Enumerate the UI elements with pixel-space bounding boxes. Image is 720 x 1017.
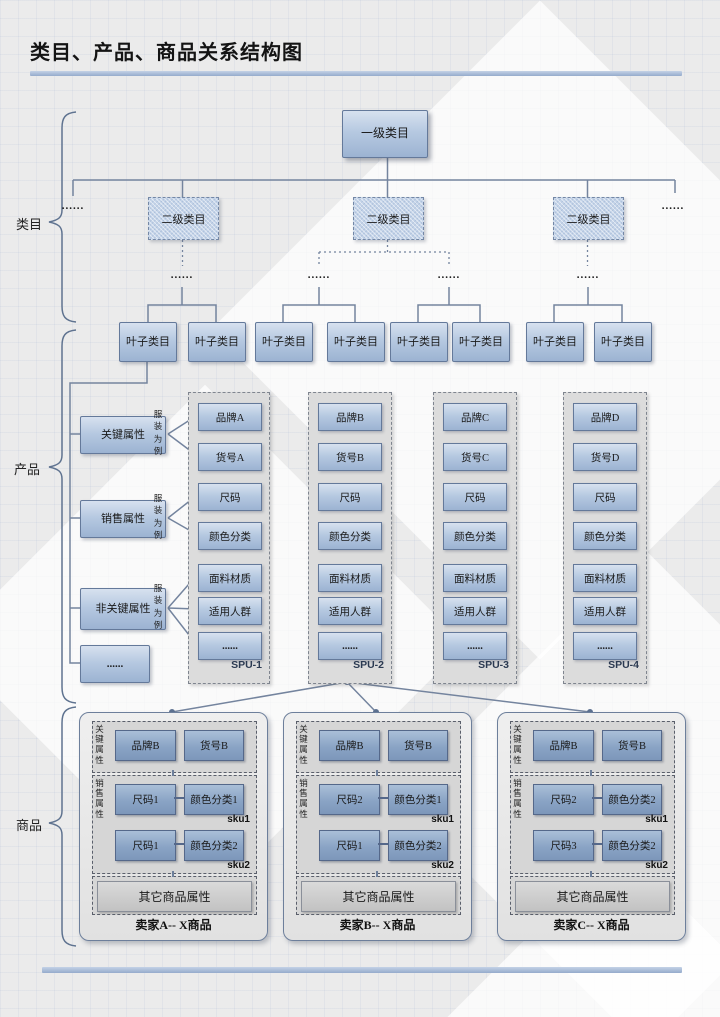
spu-attr-box: 品牌C xyxy=(443,403,507,431)
leaf-category-node: 叶子类目 xyxy=(452,322,510,362)
spu-attr-box: 颜色分类 xyxy=(443,522,507,550)
spu-attr-box: 货号C xyxy=(443,443,507,471)
size-box: 尺码2 xyxy=(533,784,594,815)
other-attr-section: 其它商品属性 xyxy=(296,876,461,915)
spu-attr-box: ...... xyxy=(198,632,262,660)
level2-category-node: 二级类目 xyxy=(148,197,219,240)
leaf-category-node: 叶子类目 xyxy=(188,322,246,362)
title-underline xyxy=(30,71,682,76)
other-attr-section: 其它商品属性 xyxy=(510,876,675,915)
sku-row-link xyxy=(174,797,184,799)
spu-attr-box: 尺码 xyxy=(318,483,382,511)
spu-label: SPU-1 xyxy=(231,659,262,671)
level2-category-node: 二级类目 xyxy=(553,197,624,240)
sales-attr-label: 销售属性 xyxy=(94,778,105,819)
root-category-node: 一级类目 xyxy=(342,110,428,158)
size-box: 尺码1 xyxy=(115,830,176,861)
spu-attr-box: 颜色分类 xyxy=(198,522,262,550)
color-box: 颜色分类2 xyxy=(602,784,662,815)
other-attr-box: 其它商品属性 xyxy=(97,881,252,912)
seller-card-c: 关键属性 品牌B 货号B 销售属性 尺码2 颜色分类2 sku1 尺码3 颜色分… xyxy=(497,712,686,941)
sales-attr-section: 销售属性 尺码1 颜色分类1 sku1 尺码1 颜色分类2 sku2 xyxy=(92,775,257,874)
branch-ellipsis: ...... xyxy=(293,269,345,281)
spu-attr-box: ...... xyxy=(573,632,637,660)
page-title: 类目、产品、商品关系结构图 xyxy=(30,36,303,65)
brand-box: 品牌B xyxy=(319,730,380,761)
seller-card-b: 关键属性 品牌B 货号B 销售属性 尺码2 颜色分类1 sku1 尺码1 颜色分… xyxy=(283,712,472,941)
spu-attr-box: 适用人群 xyxy=(443,597,507,625)
spu-column-3: 品牌C 货号C 尺码 颜色分类 面料材质 适用人群 ...... SPU-3 xyxy=(433,392,517,684)
section-connector xyxy=(172,871,174,877)
leaf-category-node: 叶子类目 xyxy=(526,322,584,362)
brace-label-goods: 商品 xyxy=(14,815,44,834)
other-attr-section: 其它商品属性 xyxy=(92,876,257,915)
spu-column-4: 品牌D 货号D 尺码 颜色分类 面料材质 适用人群 ...... SPU-4 xyxy=(563,392,647,684)
other-attr-box: 其它商品属性 xyxy=(301,881,456,912)
key-attr-label: 关键属性 xyxy=(298,724,309,765)
branch-ellipsis: ...... xyxy=(562,269,614,281)
leaf-category-node: 叶子类目 xyxy=(255,322,313,362)
spu-column-2: 品牌B 货号B 尺码 颜色分类 面料材质 适用人群 ...... SPU-2 xyxy=(308,392,392,684)
key-attr-section: 关键属性 品牌B 货号B xyxy=(92,721,257,773)
size-box: 尺码3 xyxy=(533,830,594,861)
spu-attr-box: 尺码 xyxy=(573,483,637,511)
ellipsis-left: ...... xyxy=(52,200,94,212)
color-box: 颜色分类2 xyxy=(602,830,662,861)
spu-attr-box: 货号A xyxy=(198,443,262,471)
spu-attr-box: 货号D xyxy=(573,443,637,471)
section-connector xyxy=(172,770,174,776)
item-no-box: 货号B xyxy=(602,730,662,761)
ellipsis-right: ...... xyxy=(652,200,694,212)
key-attr-label: 关键属性 xyxy=(512,724,523,765)
leaf-category-node: 叶子类目 xyxy=(119,322,177,362)
spu-attr-box: 适用人群 xyxy=(318,597,382,625)
key-attr-section: 关键属性 品牌B 货号B xyxy=(510,721,675,773)
color-box: 颜色分类1 xyxy=(184,784,244,815)
sku-row-link xyxy=(592,797,602,799)
sku-tag: sku1 xyxy=(431,814,454,825)
sku-row-link xyxy=(378,797,388,799)
leaf-category-node: 叶子类目 xyxy=(594,322,652,362)
other-attr-box: 其它商品属性 xyxy=(515,881,670,912)
leaf-category-node: 叶子类目 xyxy=(327,322,385,362)
spu-attr-box: 适用人群 xyxy=(198,597,262,625)
color-box: 颜色分类1 xyxy=(388,784,448,815)
seller-name: 卖家B-- X商品 xyxy=(284,916,471,933)
spu-label: SPU-2 xyxy=(353,659,384,671)
sales-attr-label: 销售属性 xyxy=(298,778,309,819)
spu-attr-box: 面料材质 xyxy=(573,564,637,592)
sku-row-link xyxy=(592,843,602,845)
spu-attr-box: 面料材质 xyxy=(318,564,382,592)
size-box: 尺码2 xyxy=(319,784,380,815)
leaf-category-node: 叶子类目 xyxy=(390,322,448,362)
brace-label-product: 产品 xyxy=(12,459,42,478)
example-note: 服装为例 xyxy=(151,582,165,631)
sku-tag: sku1 xyxy=(645,814,668,825)
section-connector xyxy=(376,770,378,776)
size-box: 尺码1 xyxy=(319,830,380,861)
sku-row-link xyxy=(378,843,388,845)
item-no-box: 货号B xyxy=(388,730,448,761)
sku-tag: sku2 xyxy=(431,860,454,871)
diagram-canvas: 类目、产品、商品关系结构图 类目 产品 商品 一级类目 二级类目 二级类目 二级… xyxy=(0,0,720,1017)
spu-attr-box: 颜色分类 xyxy=(318,522,382,550)
sales-attr-section: 销售属性 尺码2 颜色分类1 sku1 尺码1 颜色分类2 sku2 xyxy=(296,775,461,874)
spu-attr-box: 品牌D xyxy=(573,403,637,431)
branch-ellipsis: ...... xyxy=(423,269,475,281)
bottom-divider xyxy=(42,967,682,973)
level2-category-node: 二级类目 xyxy=(353,197,424,240)
item-no-box: 货号B xyxy=(184,730,244,761)
spu-attr-box: 颜色分类 xyxy=(573,522,637,550)
spu-attr-box: 品牌A xyxy=(198,403,262,431)
spu-attr-box: 适用人群 xyxy=(573,597,637,625)
spu-attr-box: 尺码 xyxy=(443,483,507,511)
section-connector xyxy=(590,871,592,877)
spu-attr-box: 面料材质 xyxy=(198,564,262,592)
sku-tag: sku2 xyxy=(645,860,668,871)
seller-card-a: 关键属性 品牌B 货号B 销售属性 尺码1 颜色分类1 sku1 尺码1 颜色分… xyxy=(79,712,268,941)
spu-attr-box: 货号B xyxy=(318,443,382,471)
spu-attr-box: ...... xyxy=(318,632,382,660)
spu-label: SPU-3 xyxy=(478,659,509,671)
color-box: 颜色分类2 xyxy=(184,830,244,861)
sku-tag: sku2 xyxy=(227,860,250,871)
key-attr-label: 关键属性 xyxy=(94,724,105,765)
spu-label: SPU-4 xyxy=(608,659,639,671)
brace-label-category: 类目 xyxy=(14,214,44,233)
example-note: 服装为例 xyxy=(151,408,165,457)
size-box: 尺码1 xyxy=(115,784,176,815)
spu-attr-box: ...... xyxy=(443,632,507,660)
spu-column-1: 品牌A 货号A 尺码 颜色分类 面料材质 适用人群 ...... SPU-1 xyxy=(188,392,270,684)
section-connector xyxy=(590,770,592,776)
seller-name: 卖家C-- X商品 xyxy=(498,916,685,933)
key-attr-section: 关键属性 品牌B 货号B xyxy=(296,721,461,773)
sku-tag: sku1 xyxy=(227,814,250,825)
example-note: 服装为例 xyxy=(151,492,165,541)
sales-attr-section: 销售属性 尺码2 颜色分类2 sku1 尺码3 颜色分类2 sku2 xyxy=(510,775,675,874)
sales-attr-label: 销售属性 xyxy=(512,778,523,819)
section-connector xyxy=(376,871,378,877)
branch-ellipsis: ...... xyxy=(156,269,208,281)
seller-name: 卖家A-- X商品 xyxy=(80,916,267,933)
spu-attr-box: 尺码 xyxy=(198,483,262,511)
color-box: 颜色分类2 xyxy=(388,830,448,861)
spu-attr-box: 面料材质 xyxy=(443,564,507,592)
sku-row-link xyxy=(174,843,184,845)
brand-box: 品牌B xyxy=(533,730,594,761)
spu-attr-box: 品牌B xyxy=(318,403,382,431)
attr-more-node: ...... xyxy=(80,645,150,683)
brand-box: 品牌B xyxy=(115,730,176,761)
